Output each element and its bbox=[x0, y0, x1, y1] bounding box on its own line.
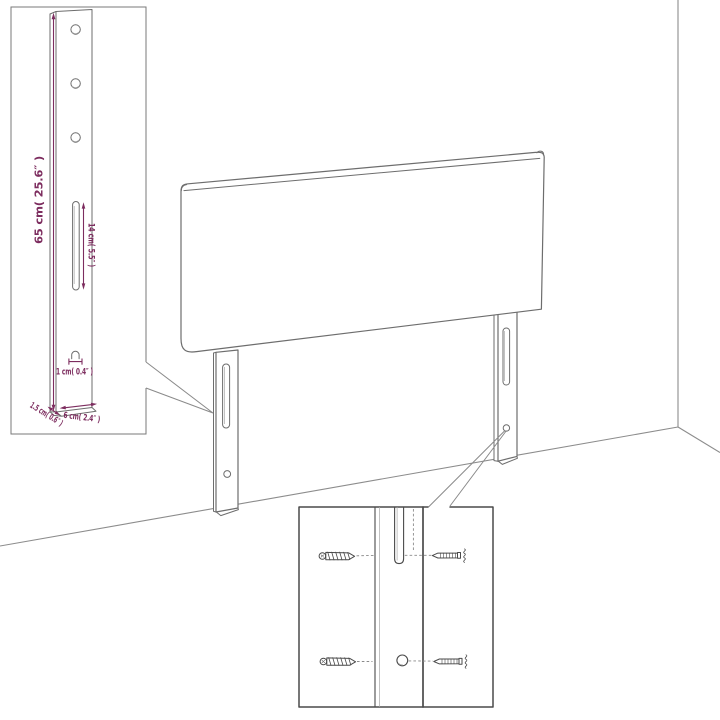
panel-outline bbox=[181, 152, 544, 352]
left-leg bbox=[214, 350, 239, 516]
right-leg bbox=[494, 311, 517, 465]
diagram-canvas: 65 cm( 25.6″ ) 14 cm( 5.5″ ) 1 cm( 0.4″ … bbox=[0, 0, 720, 720]
screw-short-top-body bbox=[432, 553, 457, 558]
hardware-box-fill bbox=[299, 507, 493, 707]
screw-short-bottom-head bbox=[459, 658, 462, 664]
headboard-panel bbox=[181, 151, 544, 352]
dim-hole-label: 1 cm( 0.4″ ) bbox=[56, 368, 93, 378]
headboard bbox=[181, 151, 544, 516]
screw-short-bottom-body bbox=[434, 659, 459, 664]
hardware-detail-inset bbox=[299, 431, 507, 708]
leg-inset-callout-lines bbox=[146, 362, 213, 413]
dim-height-label: 65 cm( 25.6″ ) bbox=[34, 156, 46, 244]
left-leg-outline bbox=[216, 350, 238, 512]
leg-profile-drawing bbox=[50, 10, 96, 417]
screw-short-top-head bbox=[458, 553, 461, 559]
dim-slot-label: 14 cm( 5.5″ ) bbox=[86, 223, 96, 267]
floor-line-right bbox=[678, 427, 720, 453]
